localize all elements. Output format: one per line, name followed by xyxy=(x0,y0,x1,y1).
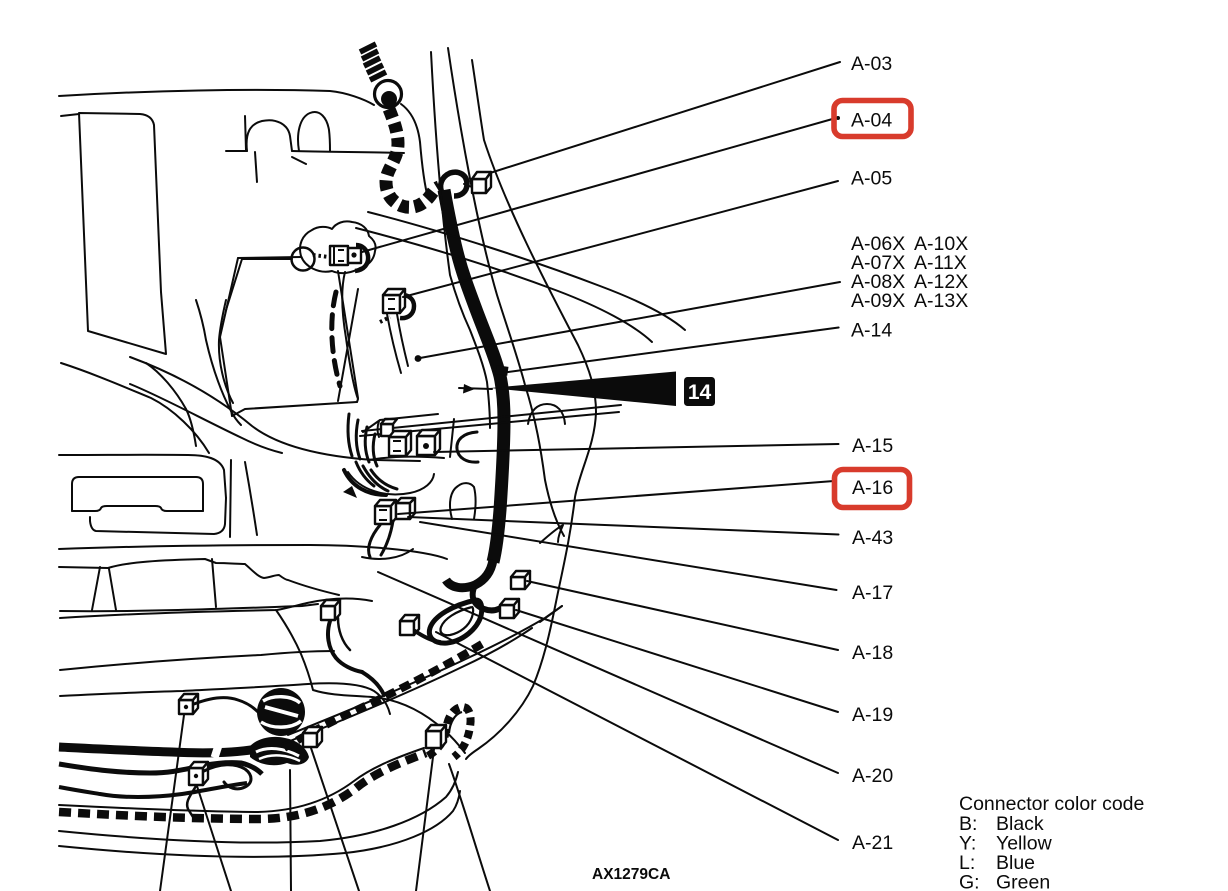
svg-text:A-16: A-16 xyxy=(852,477,893,499)
svg-text:A-19: A-19 xyxy=(852,704,893,726)
svg-text:A-21: A-21 xyxy=(852,832,893,854)
svg-text:AX1279CA: AX1279CA xyxy=(592,866,670,883)
svg-text:A-15: A-15 xyxy=(852,435,893,457)
svg-text:14: 14 xyxy=(688,381,712,404)
svg-text:A-43: A-43 xyxy=(852,527,893,549)
svg-text:A-03: A-03 xyxy=(851,53,892,75)
svg-text:Green: Green xyxy=(996,872,1050,891)
svg-text:A-05: A-05 xyxy=(851,168,892,190)
svg-text:A-18: A-18 xyxy=(852,642,893,664)
svg-text:A-14: A-14 xyxy=(851,320,892,342)
svg-text:A-04: A-04 xyxy=(851,110,892,132)
svg-text:Connector color code: Connector color code xyxy=(959,793,1144,815)
svg-text:A-13X: A-13X xyxy=(914,290,968,312)
svg-text:A-09X: A-09X xyxy=(851,290,905,312)
svg-text:G:: G: xyxy=(959,872,980,891)
svg-text:A-20: A-20 xyxy=(852,765,893,787)
svg-text:A-17: A-17 xyxy=(852,582,893,604)
